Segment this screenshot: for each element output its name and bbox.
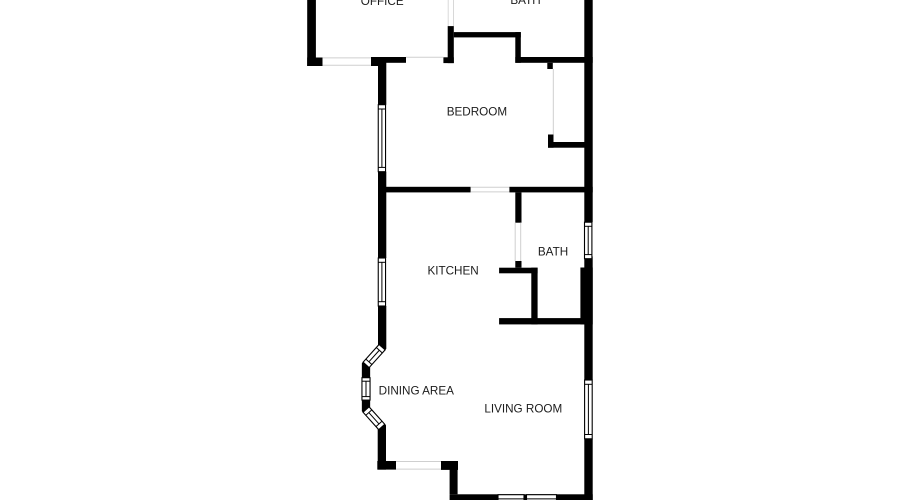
- svg-text:DINING AREA: DINING AREA: [379, 385, 455, 398]
- svg-text:LIVING ROOM: LIVING ROOM: [484, 403, 562, 416]
- svg-text:BEDROOM: BEDROOM: [447, 105, 507, 118]
- svg-text:BATH: BATH: [538, 245, 568, 258]
- svg-text:BATH: BATH: [510, 0, 540, 7]
- svg-text:KITCHEN: KITCHEN: [427, 265, 478, 278]
- svg-text:OFFICE: OFFICE: [361, 0, 404, 8]
